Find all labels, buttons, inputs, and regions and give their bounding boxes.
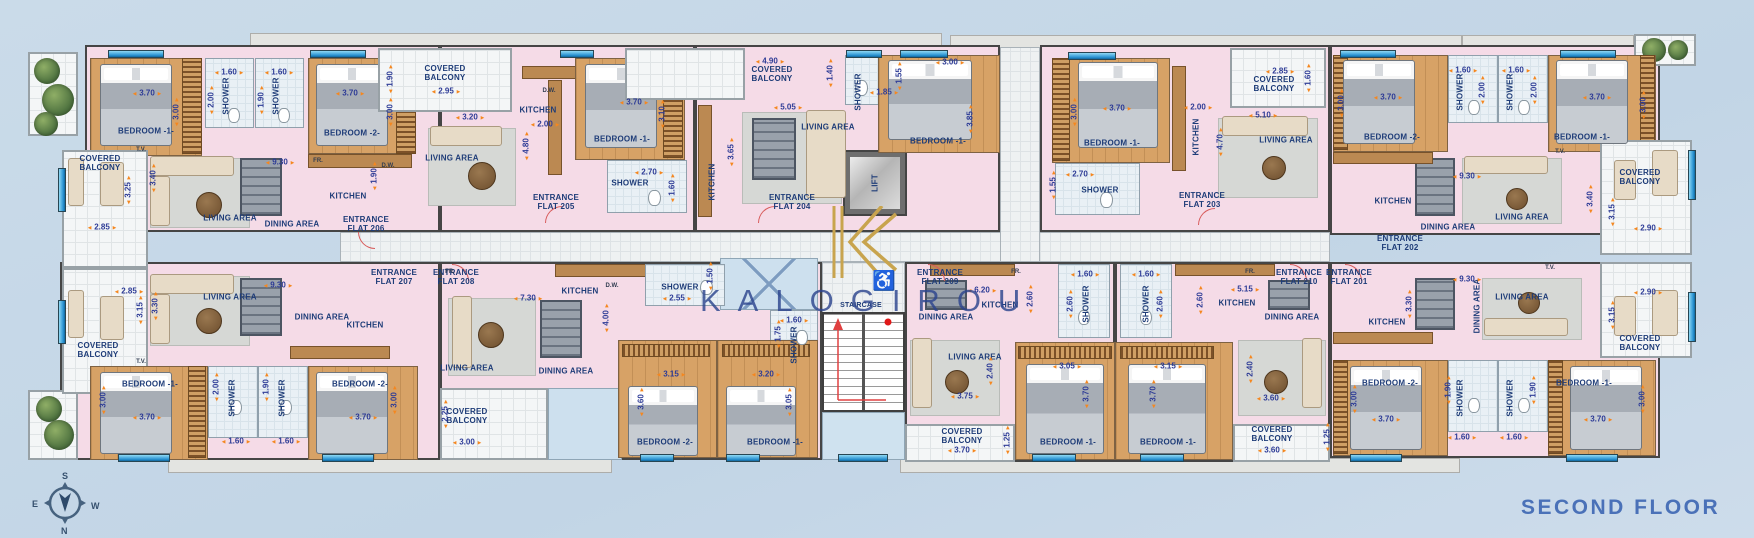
dim: 5.15: [1230, 285, 1261, 294]
flat203-shower-label: SHOWER: [1081, 185, 1118, 194]
flat206-living-label: LIVING AREA: [201, 213, 259, 222]
compass-e: E: [32, 499, 38, 509]
flat207-living-label: LIVING AREA: [201, 292, 259, 301]
dim: 2.00: [212, 372, 221, 403]
fridge-label: FR.: [313, 158, 323, 164]
compass-s: S: [62, 471, 68, 481]
flat201-shower1-label: SHOWER: [1455, 379, 1464, 416]
flat202-shower1-label: SHOWER: [1455, 73, 1464, 110]
toilet: [648, 190, 661, 206]
flat206-bedroom1-label: BEDROOM -1-: [118, 126, 174, 135]
dim: 3.70: [132, 89, 163, 98]
dim: 1.60: [264, 68, 295, 77]
flat210-dining-label: DINING AREA: [1263, 312, 1321, 321]
dim: 3.05: [1052, 362, 1083, 371]
dim: 1.60: [1447, 433, 1478, 442]
brand-watermark: KALOGIROU: [700, 283, 1037, 319]
dishwasher-label: D.W.: [382, 163, 395, 169]
dim: 1.60: [221, 437, 252, 446]
dim: 9.30: [1452, 275, 1483, 284]
dim: 1.60: [271, 437, 302, 446]
dim: 4.00: [602, 303, 611, 334]
dim: 2.00: [1478, 75, 1487, 106]
wardrobe: [188, 366, 206, 458]
flat207-balcony-label: COVERED BALCONY: [69, 341, 127, 359]
flat209-shower-label: SHOWER: [1081, 285, 1090, 322]
dim: 4.70: [1216, 127, 1225, 158]
dim: 3.40: [1586, 184, 1595, 215]
dim: 2.60: [1196, 285, 1205, 316]
dim: 9.30: [1452, 172, 1483, 181]
dim: 1.40: [826, 58, 835, 89]
dim: 3.85: [966, 104, 975, 135]
dishwasher-label: D.W.: [543, 88, 556, 94]
dim: 2.00: [530, 120, 561, 129]
flat208-shower2-label: SHOWER: [789, 326, 798, 363]
window: [118, 454, 170, 462]
sofa: [452, 296, 472, 368]
flat205-kitchen-label: KITCHEN: [520, 105, 557, 114]
dim: 1.60: [668, 173, 677, 204]
dining-table: [540, 300, 582, 358]
coffee-table: [1262, 156, 1286, 180]
dim: 3.70: [1373, 93, 1404, 102]
dim: 3.30: [1405, 289, 1414, 320]
flat208-dining-label: DINING AREA: [537, 366, 595, 375]
kitchen-counter: [1175, 264, 1275, 276]
dim: 2.90: [1633, 224, 1664, 233]
wardrobe: [1120, 346, 1214, 359]
tv-label: T.V.: [1555, 149, 1565, 155]
accessibility-icon: ♿: [872, 269, 896, 293]
flat203-living-label: LIVING AREA: [1257, 135, 1315, 144]
flat205-living-label: LIVING AREA: [423, 153, 481, 162]
dim: 3.70: [1582, 93, 1613, 102]
dim: 1.60: [1501, 66, 1532, 75]
flat207-dining-label: DINING AREA: [293, 312, 351, 321]
flat201-bedroom2-label: BEDROOM -2-: [1362, 378, 1418, 387]
dim: 3.60: [1256, 394, 1287, 403]
flat202-bedroom2-label: BEDROOM -2-: [1364, 132, 1420, 141]
dim: 1.90: [1444, 375, 1453, 406]
plant: [34, 112, 58, 136]
tv-label: T.V.: [1545, 265, 1555, 271]
window: [640, 454, 674, 462]
flat202-balcony-label: COVERED BALCONY: [1611, 168, 1669, 186]
dim: 1.25: [1003, 425, 1012, 456]
balcony-furniture: [1614, 296, 1636, 336]
dim: 3.10: [658, 99, 667, 130]
dim: 2.95: [431, 87, 462, 96]
dim: 2.40: [986, 356, 995, 387]
sofa: [1302, 338, 1322, 408]
window: [1688, 292, 1696, 342]
dining-table: [240, 158, 282, 216]
dim: 3.00: [935, 58, 966, 67]
window: [846, 50, 882, 58]
dining-table: [1415, 158, 1455, 216]
flat204-living-label: LIVING AREA: [799, 122, 857, 131]
dim: 3.00: [1639, 90, 1648, 121]
kitchen-counter: [308, 154, 412, 168]
round-table: [478, 322, 504, 348]
dim: 1.25: [1323, 422, 1332, 453]
dim: 3.00: [1350, 384, 1359, 415]
dim: 3.15: [136, 295, 145, 326]
bed: [1556, 60, 1628, 144]
flat205-bedroom1-label: BEDROOM -1-: [594, 134, 650, 143]
wardrobe: [182, 58, 202, 154]
bed: [1343, 60, 1415, 144]
dim: 4.90: [755, 57, 786, 66]
flat205-entrance-label: ENTRANCE FLAT 205: [527, 193, 585, 211]
dining-table: [1415, 278, 1455, 330]
dim: 3.60: [637, 387, 646, 418]
dim: 1.90: [386, 64, 395, 95]
window: [108, 50, 164, 58]
dim: 1.60: [1070, 270, 1101, 279]
flat201-dining-label: DINING AREA: [1472, 277, 1481, 335]
void-pool: [548, 388, 622, 460]
compass-n: N: [61, 526, 68, 536]
window: [58, 168, 66, 212]
dim: 3.40: [149, 163, 158, 194]
flat208-bedroom1-label: BEDROOM -1-: [747, 437, 803, 446]
flat202-bedroom1-label: BEDROOM -1-: [1554, 132, 1610, 141]
wardrobe: [1052, 58, 1070, 161]
dining-table: [752, 118, 796, 180]
coffee-table: [196, 308, 222, 334]
dim: 4.80: [522, 131, 531, 162]
plant: [1668, 40, 1688, 60]
dim: 1.55: [1049, 170, 1058, 201]
dim: 3.70: [348, 413, 379, 422]
dim: 2.00: [1530, 75, 1539, 106]
dim: 2.25: [441, 399, 450, 430]
flat204-shower-label: SHOWER: [853, 73, 862, 110]
sofa: [912, 338, 932, 408]
flat202-shower2-label: SHOWER: [1505, 73, 1514, 110]
dim: 1.90: [1529, 375, 1538, 406]
flat208-kitchen-label: KITCHEN: [562, 286, 599, 295]
flat201-bedroom1-label: BEDROOM -1-: [1556, 378, 1612, 387]
flat207-entrance-label: ENTRANCE FLAT 207: [365, 268, 423, 286]
wardrobe: [1018, 346, 1112, 359]
sofa: [430, 126, 502, 146]
plant: [44, 420, 74, 450]
dim: 1.60: [1448, 66, 1479, 75]
dim: 3.20: [751, 370, 782, 379]
flat203-entrance-label: ENTRANCE FLAT 203: [1173, 191, 1231, 209]
flat207-kitchen-label: KITCHEN: [347, 320, 384, 329]
flat204-balcony-label: COVERED BALCONY: [743, 65, 801, 83]
dim: 2.70: [1065, 170, 1096, 179]
dim: 9.30: [263, 281, 294, 290]
dim: 2.85: [87, 223, 118, 232]
flat204-bedroom1-label: BEDROOM -1-: [910, 136, 966, 145]
flat205-shower-label: SHOWER: [611, 178, 648, 187]
dim: 3.60: [1257, 446, 1288, 455]
dim: 3.70: [335, 89, 366, 98]
tv-label: T.V.: [136, 147, 146, 153]
dim: 2.40: [1246, 354, 1255, 385]
flat207-bedroom2-label: BEDROOM -2-: [332, 379, 388, 388]
dim: 7.30: [513, 294, 544, 303]
window: [1566, 454, 1618, 462]
window: [560, 50, 594, 58]
window: [58, 300, 66, 344]
dim: 3.70: [132, 413, 163, 422]
flat210-shower-label: SHOWER: [1141, 285, 1150, 322]
sofa: [150, 156, 234, 176]
dim: 1.60: [1499, 433, 1530, 442]
dim: 1.60: [1131, 270, 1162, 279]
dim: 3.70: [1371, 415, 1402, 424]
kitchen-counter: [1333, 152, 1433, 164]
dim: 3.70: [1149, 379, 1158, 410]
dim: 3.00: [1337, 88, 1346, 119]
dim: 3.75: [950, 392, 981, 401]
window: [310, 50, 366, 58]
plant: [34, 58, 60, 84]
flat206-bedroom2-label: BEDROOM -2-: [324, 128, 380, 137]
dim: 3.25: [124, 175, 133, 206]
wardrobe: [622, 344, 710, 357]
lift-label: LIFT: [870, 174, 879, 192]
coffee-table: [1264, 370, 1288, 394]
compass-w: W: [91, 501, 100, 511]
dim: 1.90: [257, 85, 266, 116]
dim: 5.05: [773, 103, 804, 112]
toilet: [1468, 398, 1480, 413]
dim: 3.70: [947, 446, 978, 455]
dim: 3.00: [99, 385, 108, 416]
dim: 1.55: [895, 61, 904, 92]
dim: 1.90: [262, 372, 271, 403]
flat209-bedroom1-label: BEDROOM -1-: [1040, 437, 1096, 446]
dim: 2.85: [1265, 67, 1296, 76]
window: [838, 454, 888, 462]
sofa: [150, 274, 234, 294]
dim: 3.70: [1082, 379, 1091, 410]
flat201-entrance-label: ENTRANCE FLAT 201: [1320, 268, 1378, 286]
toilet: [1518, 100, 1530, 115]
flat203-bedroom1-label: BEDROOM -1-: [1084, 138, 1140, 147]
flat210-bedroom1-label: BEDROOM -1-: [1140, 437, 1196, 446]
fridge-label: FR.: [445, 269, 455, 275]
round-table: [468, 162, 496, 190]
dim: 2.00: [207, 85, 216, 116]
window: [1340, 50, 1396, 58]
flat202-entrance-label: ENTRANCE FLAT 202: [1371, 234, 1429, 252]
balcony-furniture: [1652, 290, 1678, 336]
balcony-furniture: [100, 296, 124, 340]
window: [322, 454, 374, 462]
sofa: [1484, 318, 1568, 336]
flat206-dining-label: DINING AREA: [263, 219, 321, 228]
logo-k-mark: [826, 206, 910, 278]
tv-label: T.V.: [136, 359, 146, 365]
kitchen-counter: [1333, 332, 1433, 344]
kitchen-counter: [290, 346, 390, 359]
dim: 1.60: [1304, 63, 1313, 94]
kitchen-counter: [522, 66, 577, 79]
flat208-living-label: LIVING AREA: [438, 363, 496, 372]
plant: [36, 396, 62, 422]
coffee-table: [945, 370, 969, 394]
window: [726, 454, 760, 462]
wall-band-bottom-left: [168, 458, 612, 473]
dim: 3.00: [1070, 97, 1079, 128]
flat207-shower2-label: SHOWER: [277, 379, 286, 416]
window: [1350, 454, 1402, 462]
dim: 2.55: [662, 294, 693, 303]
flat204-entrance-label: ENTRANCE FLAT 204: [763, 193, 821, 211]
kitchen-counter: [1172, 66, 1186, 171]
dishwasher-label: D.W.: [606, 283, 619, 289]
flat206-balcony-label: COVERED BALCONY: [71, 154, 129, 172]
dim: 3.15: [1608, 197, 1617, 228]
dim: 3.70: [619, 98, 650, 107]
window: [1560, 50, 1616, 58]
flat209-balcony-label: COVERED BALCONY: [933, 427, 991, 445]
dim: 2.70: [634, 168, 665, 177]
flat207-bedroom1-label: BEDROOM -1-: [122, 379, 178, 388]
dim: 3.00: [386, 97, 395, 128]
staircase-arrow: [822, 312, 905, 412]
dim: 2.90: [1633, 288, 1664, 297]
flat201-balcony-label: COVERED BALCONY: [1611, 334, 1669, 352]
flat201-living-label: LIVING AREA: [1493, 292, 1551, 301]
fridge-label: FR.: [1245, 269, 1255, 275]
dim: 3.65: [727, 137, 736, 168]
flat208-bedroom2-label: BEDROOM -2-: [637, 437, 693, 446]
dim: 1.75: [774, 319, 783, 350]
flat210-kitchen-label: KITCHEN: [1219, 298, 1256, 307]
dim: 3.00: [172, 97, 181, 128]
dim: 9.30: [265, 158, 296, 167]
flat201-kitchen-label: KITCHEN: [1369, 317, 1406, 326]
flat209-living-label: LIVING AREA: [946, 352, 1004, 361]
dim: 3.70: [1583, 415, 1614, 424]
page-title: SECOND FLOOR: [1521, 496, 1720, 520]
flat210-balcony-label: COVERED BALCONY: [1243, 425, 1301, 443]
flat201-shower2-label: SHOWER: [1505, 379, 1514, 416]
floor-plan: LIFT STAIRCASE KALOGIROU ♿ SECOND FLOOR …: [0, 0, 1754, 538]
flat202-living-label: LIVING AREA: [1493, 212, 1551, 221]
dim: 3.15: [656, 370, 687, 379]
window: [1032, 454, 1076, 462]
dim: 3.00: [1638, 384, 1647, 415]
flat206-shower2-label: SHOWER: [271, 77, 280, 114]
dim: 3.05: [785, 387, 794, 418]
flat202-dining-label: DINING AREA: [1419, 222, 1477, 231]
dim: 2.60: [1066, 289, 1075, 320]
flat204-kitchen-label: KITCHEN: [707, 164, 716, 201]
dim: 3.15: [1608, 300, 1617, 331]
dim: 3.20: [455, 113, 486, 122]
window: [1140, 454, 1184, 462]
flat203-kitchen-label: KITCHEN: [1191, 119, 1200, 156]
flat208-shower1-label: SHOWER: [661, 282, 698, 291]
dim: 3.15: [1153, 362, 1184, 371]
flat207-shower1-label: SHOWER: [227, 379, 236, 416]
balcony-furniture: [68, 290, 84, 338]
flat206-shower1-label: SHOWER: [221, 77, 230, 114]
flat203-balcony-label: COVERED BALCONY: [1245, 75, 1303, 93]
dim: 3.00: [390, 385, 399, 416]
dim: 3.00: [452, 438, 483, 447]
dim: 1.60: [214, 68, 245, 77]
dim: 2.00: [1183, 103, 1214, 112]
flat202-kitchen-label: KITCHEN: [1375, 196, 1412, 205]
coffee-table: [1506, 188, 1528, 210]
stair-lightwell: [822, 412, 905, 460]
hallway-vertical: [1000, 47, 1040, 262]
flat204-balcony: [625, 48, 745, 100]
dim: 2.60: [1156, 289, 1165, 320]
window: [1068, 52, 1116, 60]
dim: 1.90: [370, 161, 379, 192]
wardrobe: [1548, 360, 1563, 454]
fridge-label: FR.: [1011, 269, 1021, 275]
flat206-entrance-label: ENTRANCE FLAT 206: [337, 215, 395, 233]
wardrobe: [1333, 360, 1348, 454]
dim: 3.30: [151, 291, 160, 322]
compass: S E W N: [28, 470, 102, 536]
window: [1688, 150, 1696, 200]
flat208-entrance-label: ENTRANCE FLAT 208: [427, 268, 485, 286]
flat205-balcony-label: COVERED BALCONY: [416, 64, 474, 82]
flat206-kitchen-label: KITCHEN: [330, 191, 367, 200]
dim: 3.70: [1102, 104, 1133, 113]
dim: 5.10: [1248, 111, 1279, 120]
